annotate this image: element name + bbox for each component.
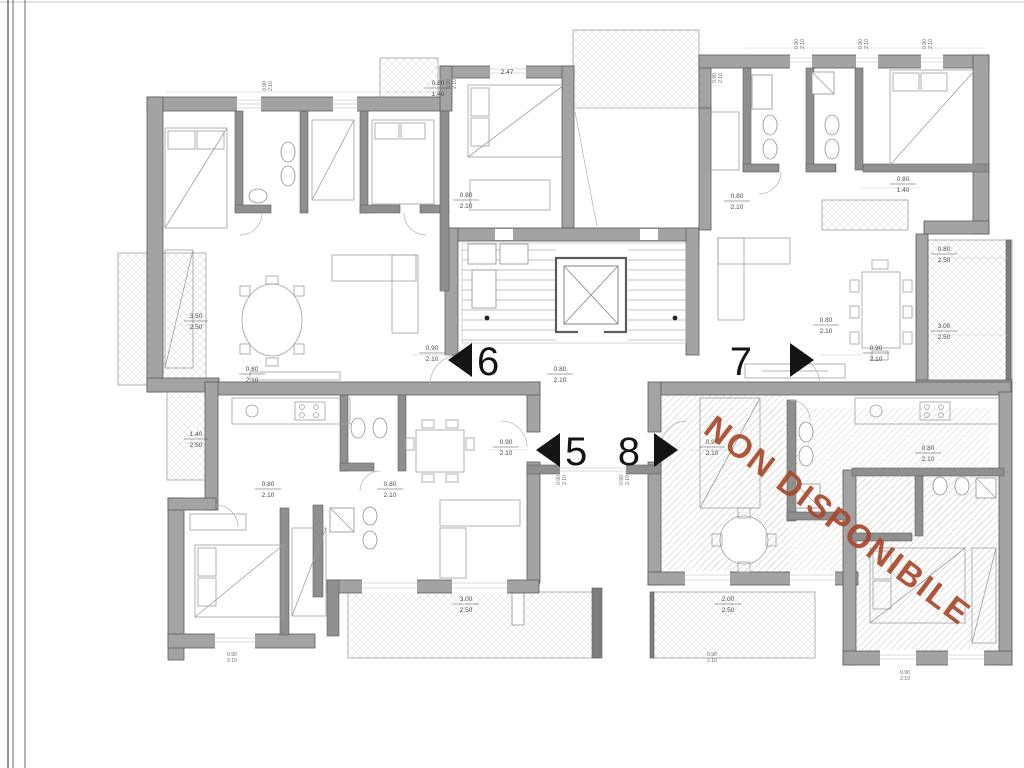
dim-corridor-2: 0.902.10 xyxy=(619,475,631,485)
window-unit8-south-2 xyxy=(790,571,835,586)
balcony-storage-box xyxy=(512,593,524,625)
svg-text:2.50: 2.50 xyxy=(460,607,473,614)
svg-text:2.10: 2.10 xyxy=(384,492,397,499)
svg-text:0.80: 0.80 xyxy=(731,193,744,200)
svg-text:1.40: 1.40 xyxy=(897,187,910,194)
svg-text:2.10: 2.10 xyxy=(554,377,567,384)
svg-text:2.10: 2.10 xyxy=(707,658,717,664)
dim-win-bottom-1: 0.902.10 xyxy=(227,652,237,664)
unit-7-marker: 7 xyxy=(730,340,814,384)
dim-width-247: 2.47 xyxy=(501,69,514,76)
svg-text:1.40: 1.40 xyxy=(190,431,203,438)
svg-text:2.50: 2.50 xyxy=(190,324,203,331)
svg-text:0.80: 0.80 xyxy=(897,176,910,183)
svg-text:0.80: 0.80 xyxy=(820,317,833,324)
dim-unit5-door: 0.902.10 xyxy=(493,439,519,457)
unit-5-number: 5 xyxy=(565,430,587,474)
svg-text:2.50: 2.50 xyxy=(938,334,951,341)
loggia-top-right xyxy=(822,200,908,230)
svg-text:2.10: 2.10 xyxy=(227,658,237,664)
svg-text:0.90: 0.90 xyxy=(870,345,883,352)
window-unit5-south-1 xyxy=(362,579,417,594)
svg-text:0.80: 0.80 xyxy=(432,80,445,87)
svg-text:0.80: 0.80 xyxy=(262,481,275,488)
svg-text:0.80: 0.80 xyxy=(938,246,951,253)
svg-text:2.10: 2.10 xyxy=(500,450,513,457)
unit-7-number: 7 xyxy=(730,340,752,384)
svg-text:2.10: 2.10 xyxy=(900,676,910,682)
svg-text:2.10: 2.10 xyxy=(268,81,274,91)
meter-box-2 xyxy=(500,244,528,264)
svg-text:2.10: 2.10 xyxy=(625,475,631,485)
dim-door-1: 0.802.10 xyxy=(453,192,479,210)
dim-door-6: 0.802.10 xyxy=(377,481,403,499)
window-top-left-2 xyxy=(333,96,357,112)
window-top-right-1 xyxy=(790,54,812,69)
dim-win-bottom-3: 0.902.10 xyxy=(900,670,910,682)
window-top-left-1 xyxy=(237,96,261,112)
dim-win-rot-6: 0.902.10 xyxy=(922,39,934,49)
svg-text:2.10: 2.10 xyxy=(731,204,744,211)
floor-plan-drawing: 0.902.10 0.902.10 0.902.10 0.902.10 3.50… xyxy=(0,0,1024,768)
svg-text:1.40: 1.40 xyxy=(432,91,445,98)
svg-text:0.80: 0.80 xyxy=(460,192,473,199)
dim-win-bottom-2: 0.902.10 xyxy=(707,652,717,664)
window-unit8-south-1 xyxy=(685,571,730,586)
svg-text:2.10: 2.10 xyxy=(864,39,870,49)
svg-text:2.10: 2.10 xyxy=(562,475,568,485)
svg-text:2.10: 2.10 xyxy=(928,39,934,49)
dim-door-4: 0.802.10 xyxy=(547,366,573,384)
unit-6-number: 6 xyxy=(477,340,499,384)
balcony-rail-bottom-center xyxy=(592,588,602,658)
svg-text:0.80: 0.80 xyxy=(246,366,259,373)
svg-text:2.10: 2.10 xyxy=(870,356,883,363)
svg-text:2.10: 2.10 xyxy=(460,203,473,210)
dim-door-7: 0.802.10 xyxy=(813,317,839,335)
furniture-top-center-bedroom xyxy=(468,85,564,210)
balcony-rail-bottom-right xyxy=(650,592,654,658)
window-bottom-right-1 xyxy=(880,650,916,666)
balcony-rail-right xyxy=(1006,240,1011,388)
dim-win-rot-1: 0.902.10 xyxy=(262,81,274,91)
dim-door-3: 0.802.10 xyxy=(239,366,265,384)
dim-corridor-1: 0.902.10 xyxy=(556,475,568,485)
svg-text:0.80: 0.80 xyxy=(554,366,567,373)
dim-win-rot-2: 0.902.10 xyxy=(446,79,458,89)
dim-window-top-right: 0.801.40 xyxy=(890,176,916,194)
svg-text:0.90: 0.90 xyxy=(426,345,439,352)
svg-text:2.10: 2.10 xyxy=(820,328,833,335)
meter-box-3 xyxy=(472,270,496,308)
svg-text:3.50: 3.50 xyxy=(190,313,203,320)
dim-door-2: 0.802.10 xyxy=(724,193,750,211)
svg-text:2.10: 2.10 xyxy=(426,356,439,363)
svg-text:3.00: 3.00 xyxy=(460,596,473,603)
svg-text:2.00: 2.00 xyxy=(722,596,735,603)
stair-core xyxy=(462,108,699,343)
window-unit5-south-2 xyxy=(452,579,507,594)
svg-text:0.80: 0.80 xyxy=(384,481,397,488)
window-top-right-2 xyxy=(856,54,878,69)
dim-win-rot-5: 0.902.10 xyxy=(858,39,870,49)
unit-7-arrow-icon xyxy=(790,343,814,377)
window-bottom-left xyxy=(215,633,255,649)
svg-text:2.10: 2.10 xyxy=(922,456,935,463)
svg-text:2.10: 2.10 xyxy=(452,79,458,89)
window-top-right-3 xyxy=(921,54,943,69)
balcony-bottom-center xyxy=(348,592,598,658)
dim-unit6-door: 0.902.10 xyxy=(419,345,445,363)
unit-8-number: 8 xyxy=(618,430,640,474)
svg-text:2.10: 2.10 xyxy=(246,377,259,384)
svg-text:2.10: 2.10 xyxy=(262,492,275,499)
dim-win-rot-4: 0.902.10 xyxy=(794,39,806,49)
svg-text:2.50: 2.50 xyxy=(190,442,203,449)
stair-treads-right xyxy=(628,250,686,340)
elevator xyxy=(556,258,626,334)
dim-win-rot-3: 0.902.10 xyxy=(712,73,724,83)
window-bottom-right-2 xyxy=(948,650,984,666)
dim-door-5: 0.802.10 xyxy=(255,481,281,499)
svg-text:2.47: 2.47 xyxy=(501,69,514,76)
svg-text:2.10: 2.10 xyxy=(800,39,806,49)
svg-text:2.50: 2.50 xyxy=(938,257,951,264)
floor-plan-canvas: 0.902.10 0.902.10 0.902.10 0.902.10 3.50… xyxy=(0,0,1024,768)
balcony-top-center xyxy=(573,30,699,108)
meter-box-1 xyxy=(468,244,496,264)
svg-text:2.10: 2.10 xyxy=(718,73,724,83)
svg-text:3.00: 3.00 xyxy=(938,323,951,330)
svg-text:2.50: 2.50 xyxy=(722,607,735,614)
svg-text:0.90: 0.90 xyxy=(500,439,513,446)
svg-text:0.80: 0.80 xyxy=(922,445,935,452)
